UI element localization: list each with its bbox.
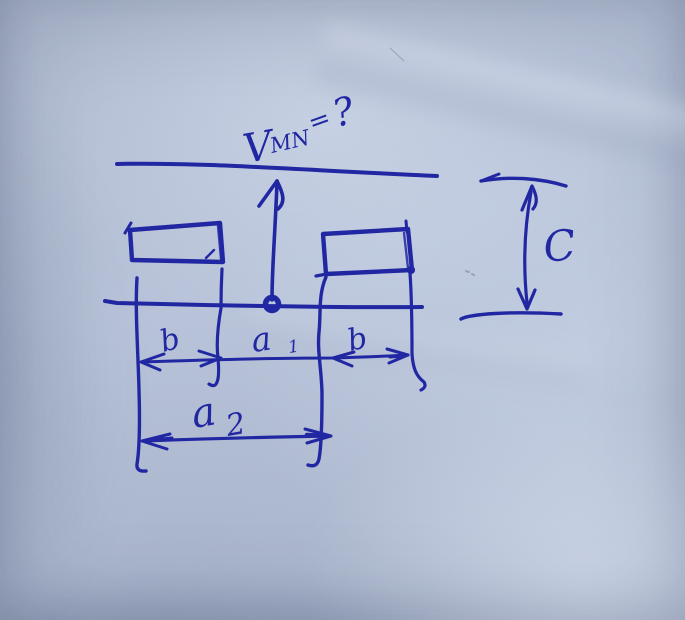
hand-drawn-diagram: V MN = ? [0,0,685,620]
paper-grain-texture [0,0,685,620]
photo-of-paper: V MN = ? [0,0,685,620]
